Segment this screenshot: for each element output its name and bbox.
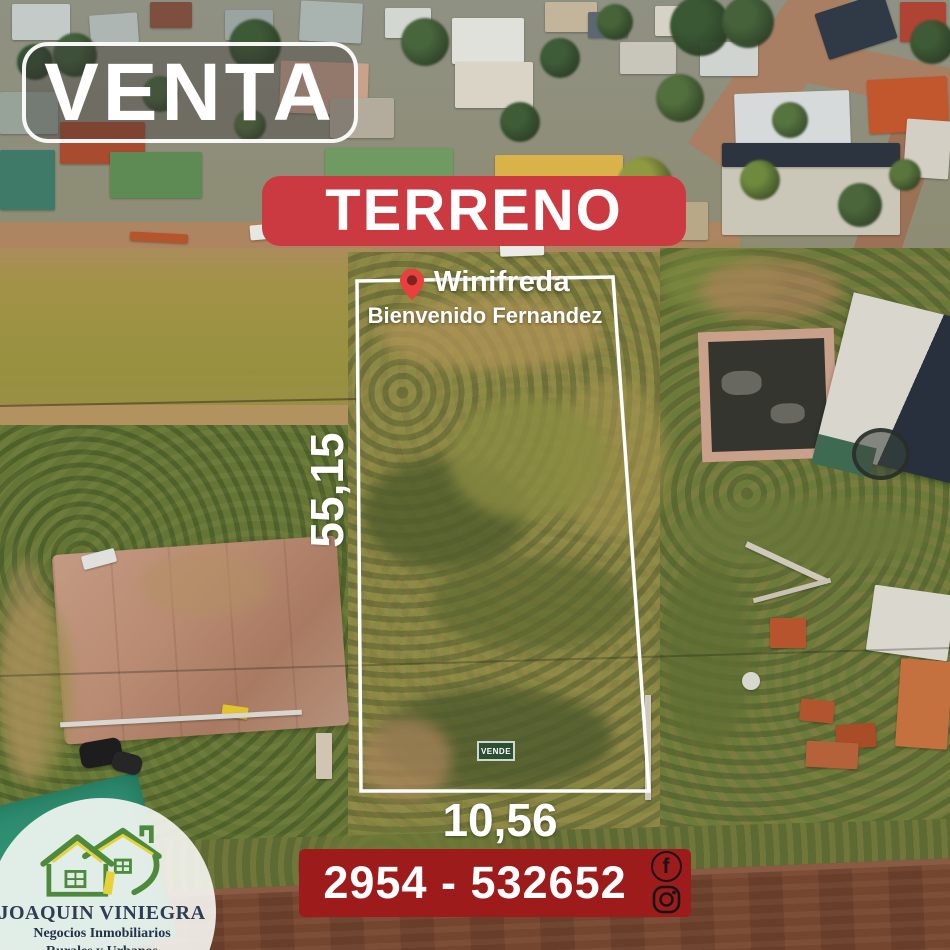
front-dimension-label: 10,56: [420, 793, 580, 847]
depth-value: 55,15: [300, 432, 354, 547]
front-value: 10,56: [442, 794, 557, 846]
fence-line: [0, 399, 357, 406]
vende-sign-label: VENDE: [481, 747, 511, 756]
instagram-icon[interactable]: [651, 884, 682, 915]
depth-dimension-label: 55,15: [252, 410, 402, 570]
location-pin-icon: [400, 268, 424, 301]
terreno-label: TERRENO: [325, 182, 623, 240]
location-street: Bienvenido Fernandez: [362, 303, 608, 329]
facebook-icon[interactable]: f: [651, 851, 682, 882]
social-icons: f: [647, 851, 691, 915]
phone-number: 2954 - 532652: [299, 857, 647, 909]
agency-tagline-2: Rurales y Urbanos: [46, 943, 158, 950]
venta-label: VENTA: [44, 52, 336, 134]
location-label: Winifreda Bienvenido Fernandez: [362, 266, 608, 329]
power-line: [0, 648, 950, 676]
terreno-banner: TERRENO: [262, 176, 686, 246]
venta-badge: VENTA: [22, 42, 358, 143]
agency-tagline-1: Negocios Inmobiliarios: [33, 925, 170, 943]
location-city: Winifreda: [434, 266, 570, 299]
phone-banner: 2954 - 532652 f: [299, 849, 691, 917]
agency-name: JOAQUIN VINIEGRA: [0, 902, 206, 925]
houses-logo-icon: [33, 824, 171, 898]
real-estate-flyer: VENDE VENTA TERRENO Winifreda Bienvenido…: [0, 0, 950, 950]
vende-sign: VENDE: [477, 741, 515, 761]
